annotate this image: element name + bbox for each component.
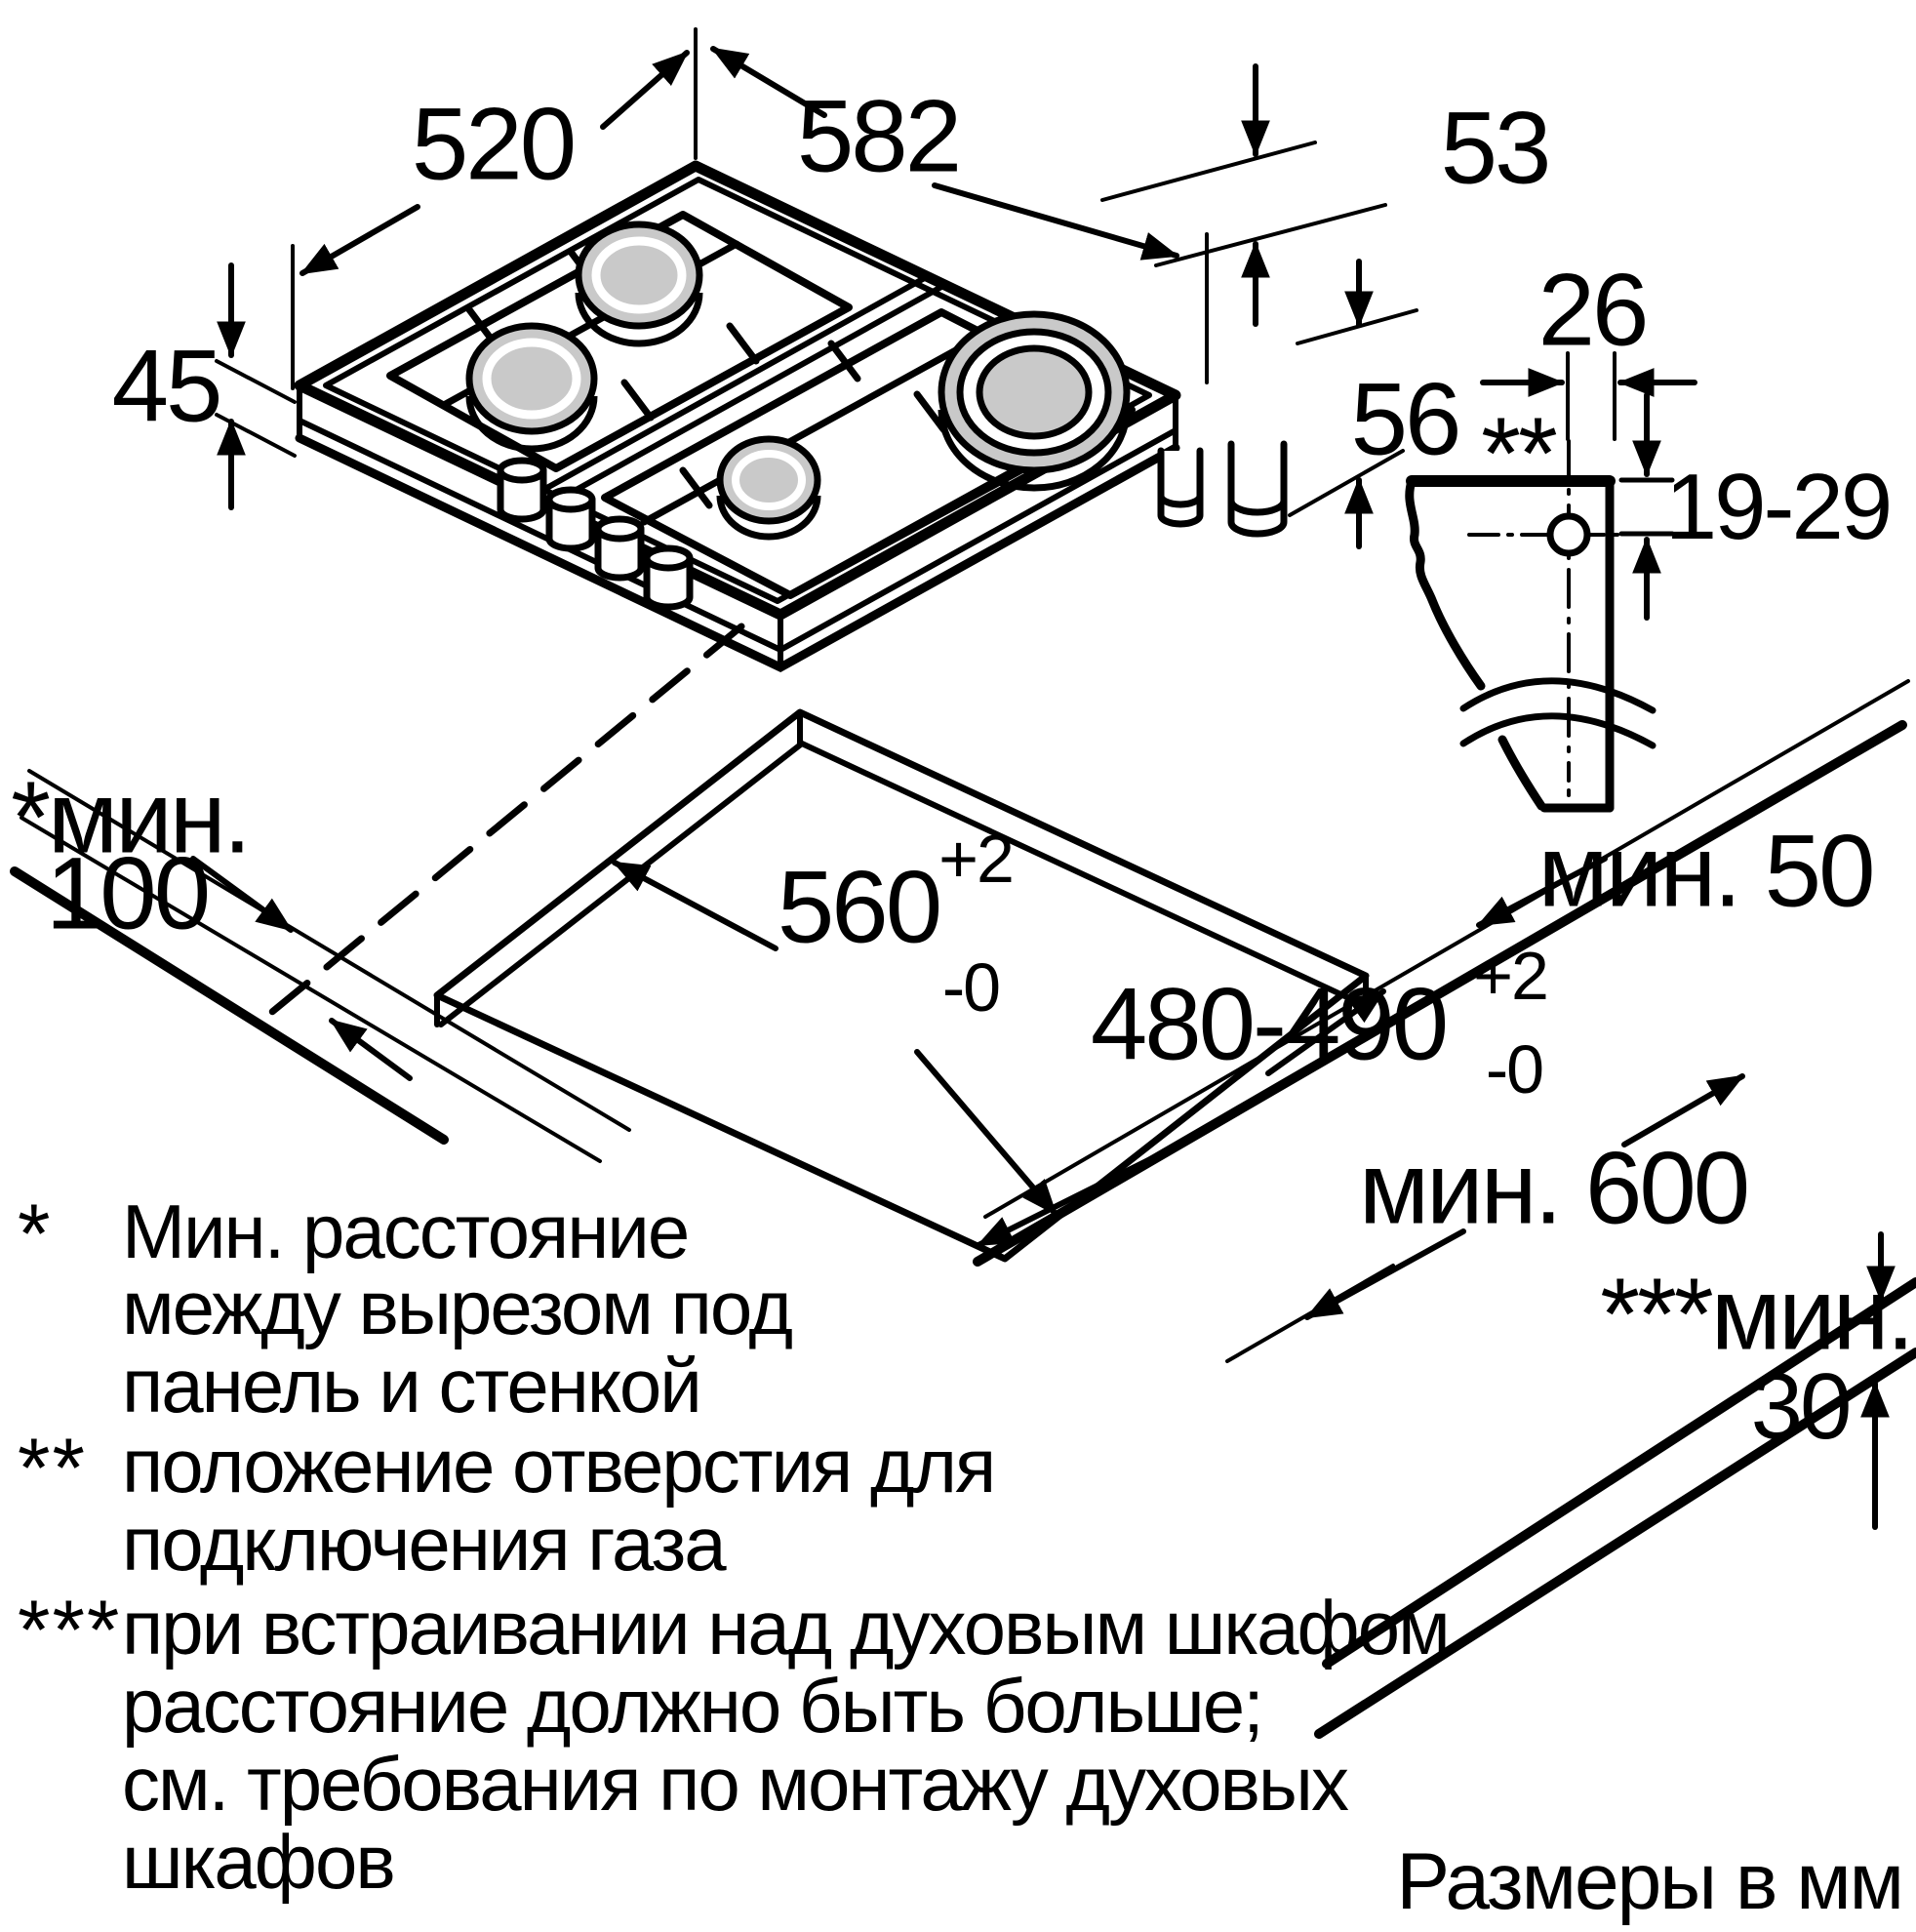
footnote-tstar-line2: расстояние должно быть больше; [122,1667,1262,1745]
dim-26: 26 [1538,260,1647,362]
footnote-star-line3: панель и стенкой [122,1347,700,1425]
dim-582: 582 [797,86,959,188]
dim-560-tol-plus: +2 [938,825,1013,893]
dim-480-490: 480-490 [1091,974,1446,1076]
gas-hole-marker: ** [1481,403,1555,505]
footnote-star-line2: между вырезом под [122,1268,791,1347]
units-note: Размеры в мм [1396,1836,1902,1928]
dim-480-490-tol-minus: -0 [1486,1035,1542,1104]
footnote-star-marker: * [18,1192,52,1276]
projection-dashed-line [261,626,741,1021]
footnote-tstar-line4: шкафов [122,1823,394,1901]
dim-560: 560 [778,857,939,959]
footnote-tstar-line3: см. требования по монтажу духовых [122,1745,1347,1823]
footnote-star-line1: Мин. расстояние [122,1192,688,1270]
dim-19-29: 19-29 [1665,461,1891,554]
dim-min-30-line1: ***мин. [1600,1264,1912,1366]
dim-min-100-line2: 100 [46,843,208,946]
installation-diagram: 520 582 53 45 26 56 ** 19-29 560 +2 -0 4… [0,0,1916,1932]
dim-480-490-tol-plus: +2 [1473,942,1547,1010]
dim-min-600: мин. 600 [1359,1138,1747,1240]
dim-min-50: мин. 50 [1538,821,1873,923]
dim-45: 45 [112,336,220,438]
dim-min-30-line2: 30 [1751,1360,1850,1454]
dim-560-tol-minus: -0 [942,953,999,1022]
dim-53: 53 [1441,98,1549,200]
hob-leg [1161,444,1284,534]
dim-520: 520 [412,94,574,196]
footnote-tstar-marker: *** [18,1589,121,1672]
gas-hole [1550,516,1587,553]
footnote-dstar-marker: ** [18,1427,87,1510]
footnote-dstar-line1: положение отверстия для [122,1427,994,1505]
dim-56: 56 [1351,369,1459,471]
footnote-tstar-line1: при встраивании над духовым шкафом [122,1589,1449,1667]
footnote-dstar-line2: подключения газа [122,1505,725,1583]
